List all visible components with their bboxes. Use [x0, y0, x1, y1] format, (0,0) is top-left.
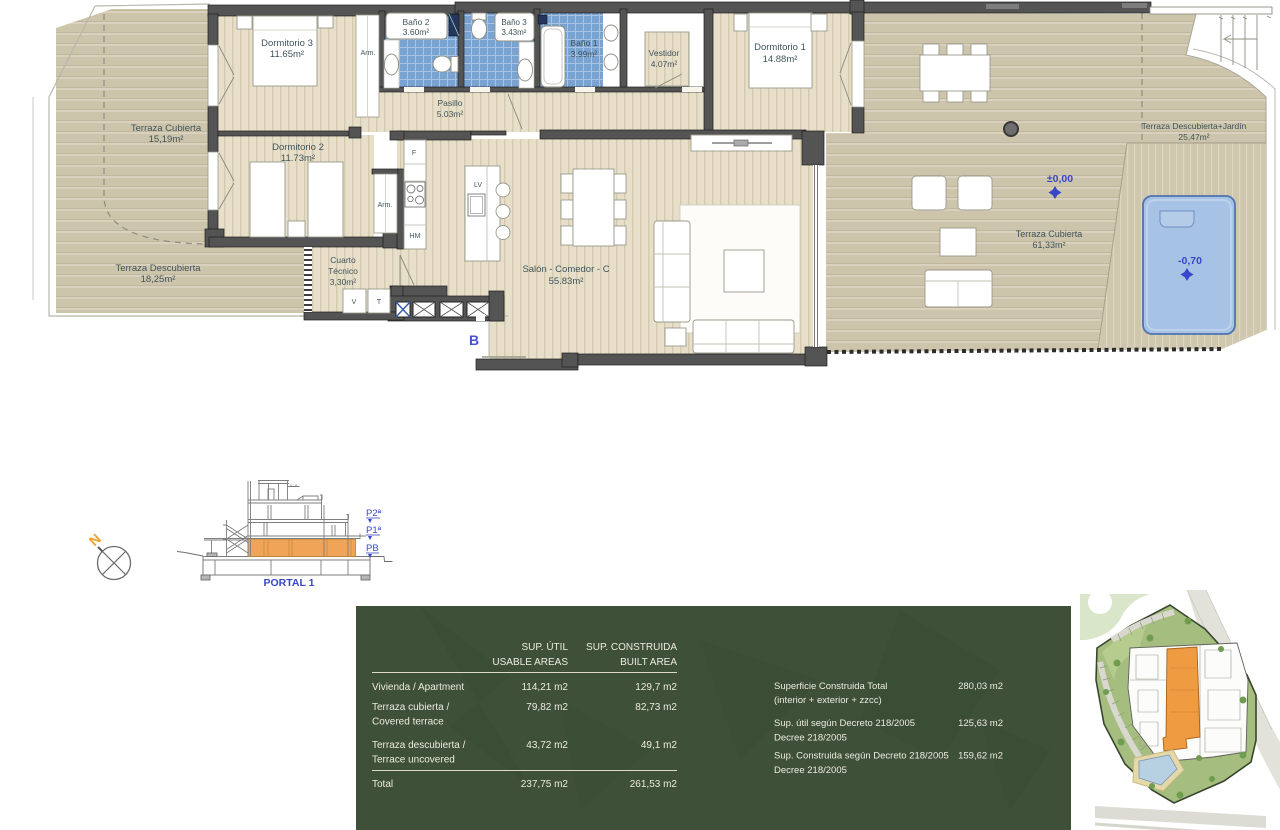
svg-text:18,25m²: 18,25m² [141, 274, 176, 285]
svg-text:-0,70: -0,70 [1178, 255, 1202, 267]
svg-text:3.43m²: 3.43m² [502, 28, 527, 37]
svg-text:55.83m²: 55.83m² [549, 276, 584, 287]
svg-text:Dormitorio 2: Dormitorio 2 [272, 142, 324, 153]
svg-text:Terraza descubierta /: Terraza descubierta / [372, 740, 466, 751]
svg-text:237,75 m2: 237,75 m2 [521, 779, 569, 790]
svg-text:Dormitorio 1: Dormitorio 1 [754, 42, 806, 53]
svg-text:129,7 m2: 129,7 m2 [635, 682, 677, 693]
svg-text:Terrace uncovered: Terrace uncovered [372, 755, 455, 766]
svg-text:SUP. CONSTRUIDA: SUP. CONSTRUIDA [586, 642, 677, 653]
svg-text:LV: LV [474, 182, 482, 189]
svg-text:61,33m²: 61,33m² [1032, 240, 1065, 250]
svg-text:125,63 m2: 125,63 m2 [958, 718, 1003, 729]
svg-text:Terraza Cubierta: Terraza Cubierta [131, 123, 202, 134]
svg-text:Covered terrace: Covered terrace [372, 717, 444, 728]
svg-text:USABLE AREAS: USABLE AREAS [492, 657, 568, 668]
svg-text:Sup. Construida según Decreto: Sup. Construida según Decreto 218/2005 [774, 751, 949, 762]
svg-text:(interior + exterior + zzcc): (interior + exterior + zzcc) [774, 695, 882, 706]
svg-text:Baño 2: Baño 2 [403, 17, 430, 27]
svg-text:Decree 218/2005: Decree 218/2005 [774, 733, 847, 744]
svg-text:261,53 m2: 261,53 m2 [630, 779, 678, 790]
svg-text:5.03m²: 5.03m² [437, 109, 464, 119]
svg-text:Vivienda / Apartment: Vivienda / Apartment [372, 682, 464, 693]
svg-text:15,19m²: 15,19m² [149, 134, 184, 145]
svg-text:Terraza Descubierta+Jardín: Terraza Descubierta+Jardín [1142, 121, 1247, 131]
svg-text:Terraza cubierta /: Terraza cubierta / [372, 702, 449, 713]
svg-text:B: B [469, 332, 479, 348]
svg-text:Terraza Descubierta: Terraza Descubierta [115, 263, 201, 274]
svg-text:T: T [377, 299, 382, 306]
svg-text:P2ª: P2ª [366, 508, 382, 519]
svg-text:Arm.: Arm. [378, 202, 393, 209]
svg-text:Terraza Cubierta: Terraza Cubierta [1016, 229, 1083, 239]
svg-text:Baño 1: Baño 1 [571, 38, 598, 48]
svg-text:82,73 m2: 82,73 m2 [635, 702, 677, 713]
svg-text:BUILT AREA: BUILT AREA [620, 657, 677, 668]
svg-text:280,03 m2: 280,03 m2 [958, 681, 1003, 692]
svg-text:PORTAL 1: PORTAL 1 [264, 577, 315, 589]
svg-text:11.73m²: 11.73m² [281, 153, 315, 164]
svg-text:4.07m²: 4.07m² [651, 59, 678, 69]
svg-text:11.65m²: 11.65m² [270, 49, 304, 60]
svg-text:159,62 m2: 159,62 m2 [958, 751, 1003, 762]
svg-text:PB: PB [366, 543, 379, 554]
svg-text:Salón - Comedor - C: Salón - Comedor - C [522, 264, 609, 275]
svg-text:14.88m²: 14.88m² [763, 54, 798, 65]
svg-text:SUP. ÚTIL: SUP. ÚTIL [522, 640, 569, 653]
svg-text:P1ª: P1ª [366, 525, 382, 536]
svg-text:43,72 m2: 43,72 m2 [526, 740, 568, 751]
svg-text:Superficie Construida Total: Superficie Construida Total [774, 681, 887, 692]
svg-text:3.60m²: 3.60m² [403, 27, 430, 37]
svg-text:49,1 m2: 49,1 m2 [641, 740, 678, 751]
svg-text:HM: HM [410, 233, 421, 240]
svg-text:114,21 m2: 114,21 m2 [521, 682, 568, 693]
svg-text:Técnico: Técnico [328, 266, 358, 276]
svg-text:Sup. útil según Decreto 218/20: Sup. útil según Decreto 218/2005 [774, 718, 915, 729]
svg-text:3,30m²: 3,30m² [330, 277, 357, 287]
svg-text:Cuarto: Cuarto [330, 255, 356, 265]
svg-text:Decree 218/2005: Decree 218/2005 [774, 765, 847, 776]
svg-text:V: V [352, 299, 357, 306]
svg-text:79,82 m2: 79,82 m2 [526, 702, 568, 713]
svg-text:Arm.: Arm. [361, 50, 376, 57]
svg-text:25,47m²: 25,47m² [1178, 132, 1209, 142]
svg-text:Pasillo: Pasillo [437, 98, 462, 108]
svg-text:Dormitorio 3: Dormitorio 3 [261, 38, 313, 49]
svg-text:Baño 3: Baño 3 [501, 18, 527, 27]
svg-text:F: F [412, 150, 416, 157]
svg-text:3.99m²: 3.99m² [571, 49, 598, 59]
svg-text:Total: Total [372, 779, 393, 790]
svg-text:±0,00: ±0,00 [1047, 173, 1073, 185]
svg-text:Vestidor: Vestidor [649, 48, 680, 58]
